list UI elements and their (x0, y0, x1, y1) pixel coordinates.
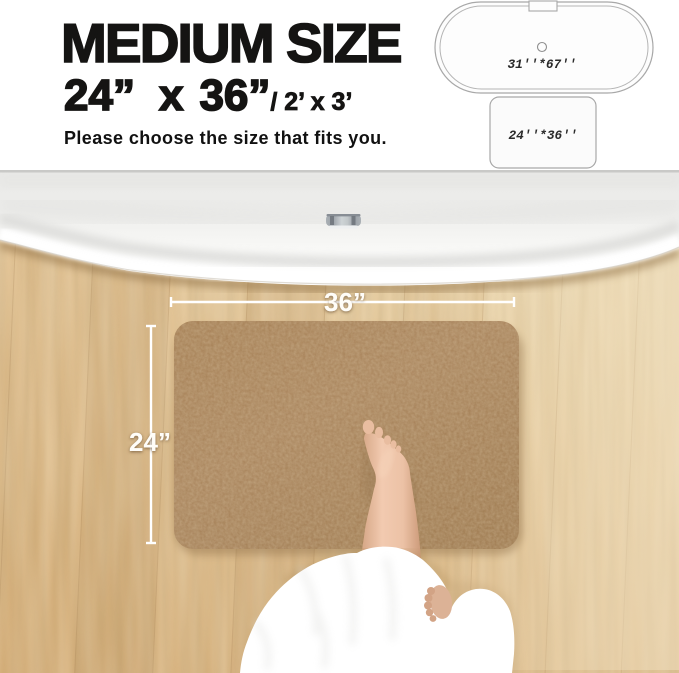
svg-text:36”: 36” (324, 287, 366, 317)
svg-text:31''*67'': 31''*67'' (507, 57, 576, 72)
svg-text:24”: 24” (129, 427, 171, 457)
svg-text:24''*36'': 24''*36'' (508, 128, 577, 143)
